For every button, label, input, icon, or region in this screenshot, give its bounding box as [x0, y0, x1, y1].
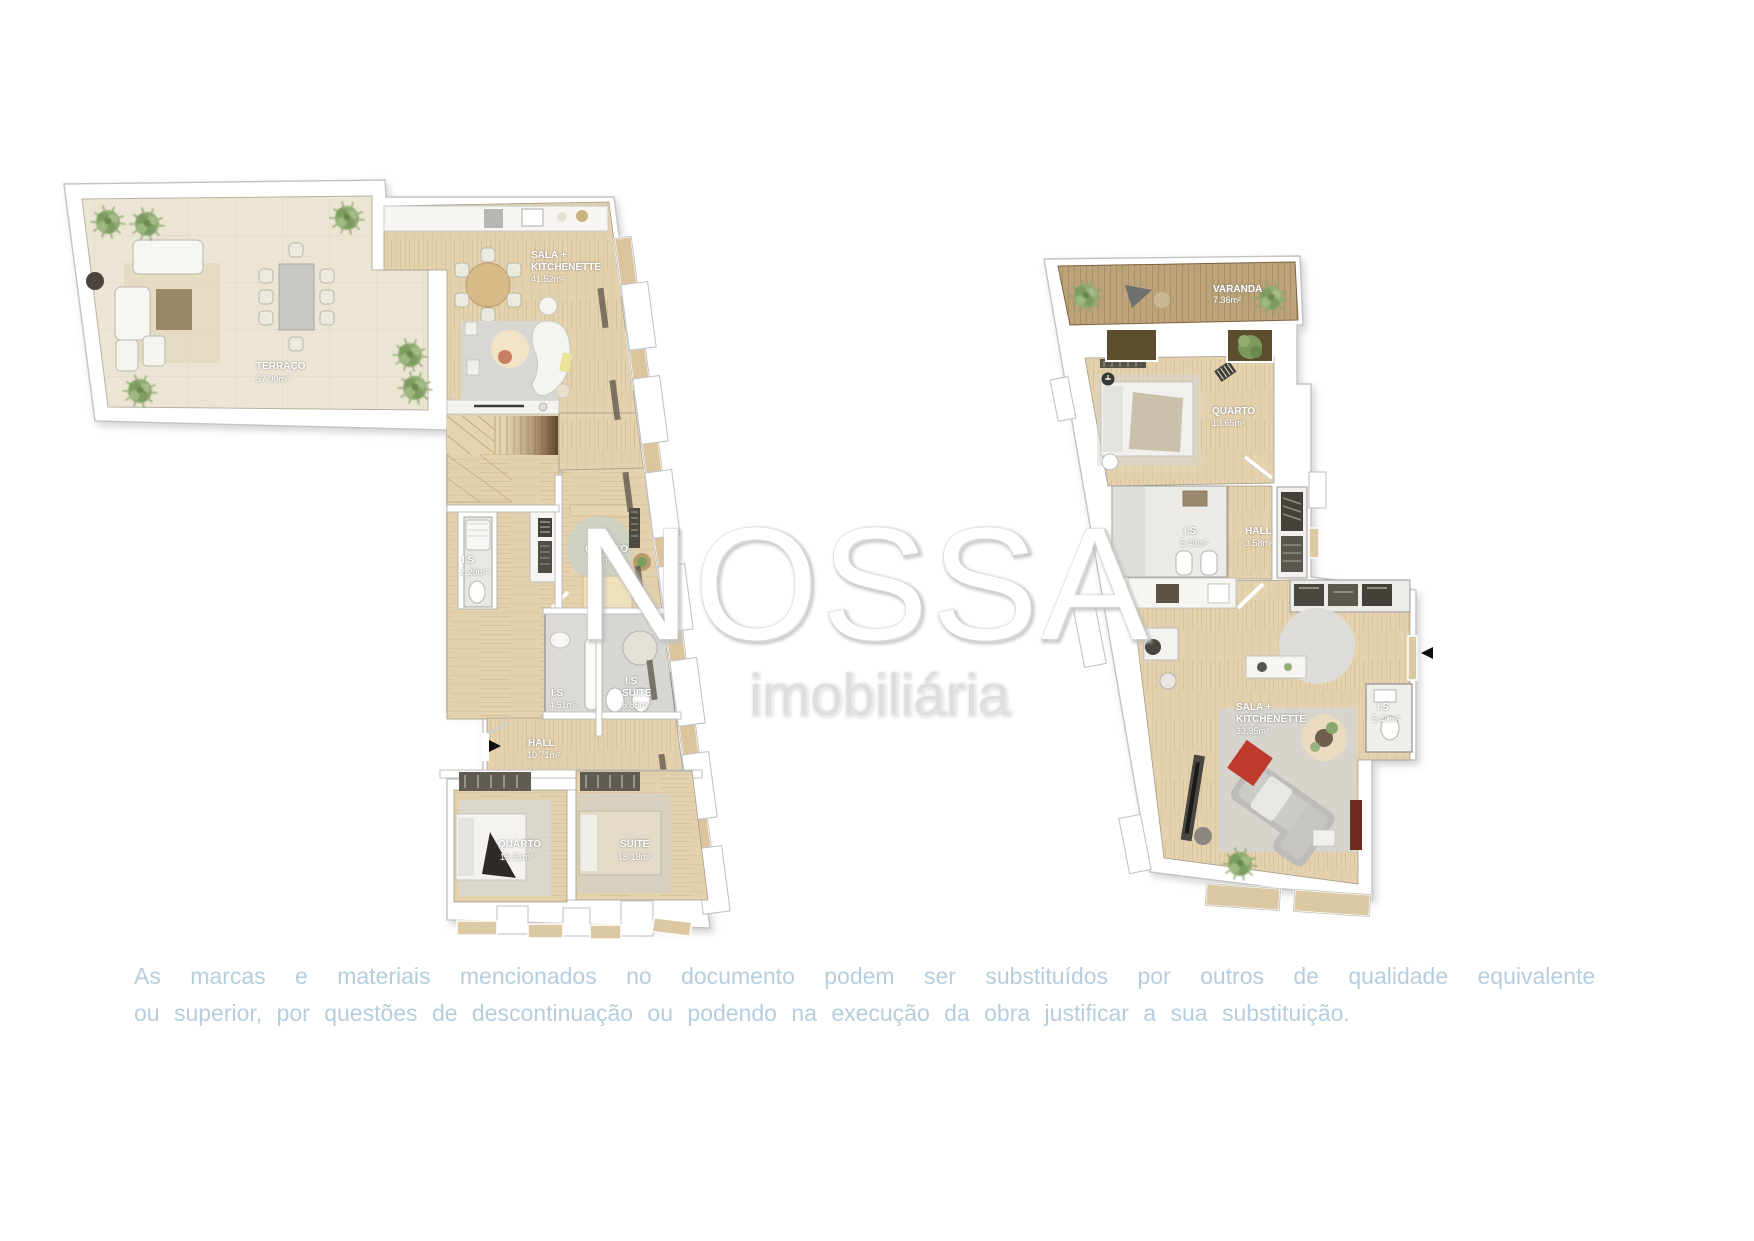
svg-text:57.90m²: 57.90m²	[256, 374, 289, 384]
svg-text:SUITE: SUITE	[620, 839, 650, 850]
svg-text:33.35m²: 33.35m²	[1236, 726, 1269, 736]
svg-text:KITCHENETTE: KITCHENETTE	[531, 262, 601, 273]
svg-text:HALL: HALL	[528, 738, 555, 749]
svg-text:15.51m²: 15.51m²	[500, 852, 533, 862]
svg-text:SALA +: SALA +	[1236, 702, 1272, 713]
svg-text:KITCHENETTE: KITCHENETTE	[1236, 714, 1306, 725]
svg-text:QUARTO: QUARTO	[498, 839, 541, 850]
svg-text:41.52m²: 41.52m²	[531, 274, 564, 284]
svg-text:TERRAÇO: TERRAÇO	[256, 361, 306, 372]
svg-text:QUARTO: QUARTO	[1212, 406, 1255, 417]
svg-text:5.43m²: 5.43m²	[1180, 538, 1208, 548]
svg-text:SALA +: SALA +	[531, 250, 567, 261]
svg-text:6.85m²: 6.85m²	[622, 700, 650, 710]
svg-text:SUITE: SUITE	[622, 688, 652, 699]
svg-text:2.29m²: 2.29m²	[460, 567, 488, 577]
svg-text:imobiliária: imobiliária	[749, 663, 1011, 728]
svg-text:I.S: I.S	[551, 688, 564, 699]
svg-text:I.S: I.S	[1184, 526, 1197, 537]
svg-text:5.43m²: 5.43m²	[1372, 714, 1400, 724]
svg-text:13.65m²: 13.65m²	[1212, 418, 1245, 428]
svg-text:18.18m²: 18.18m²	[618, 852, 651, 862]
svg-text:7.36m²: 7.36m²	[1213, 295, 1241, 305]
svg-text:I.S: I.S	[625, 676, 638, 687]
svg-text:VARANDA: VARANDA	[1213, 284, 1262, 295]
svg-text:10.71m²: 10.71m²	[527, 750, 560, 760]
svg-text:NOSSA: NOSSA	[575, 494, 1151, 673]
svg-text:4.51m²: 4.51m²	[549, 700, 577, 710]
svg-text:HALL: HALL	[1245, 526, 1272, 537]
svg-text:I.S: I.S	[1377, 702, 1390, 713]
svg-text:3.58m²: 3.58m²	[1245, 538, 1273, 548]
svg-text:I.S: I.S	[462, 555, 475, 566]
svg-text:As marcas e materiais menciona: As marcas e materiais mencionados no doc…	[134, 963, 1595, 989]
svg-text:ou superior, por questões de d: ou superior, por questões de descontinua…	[134, 1000, 1350, 1026]
